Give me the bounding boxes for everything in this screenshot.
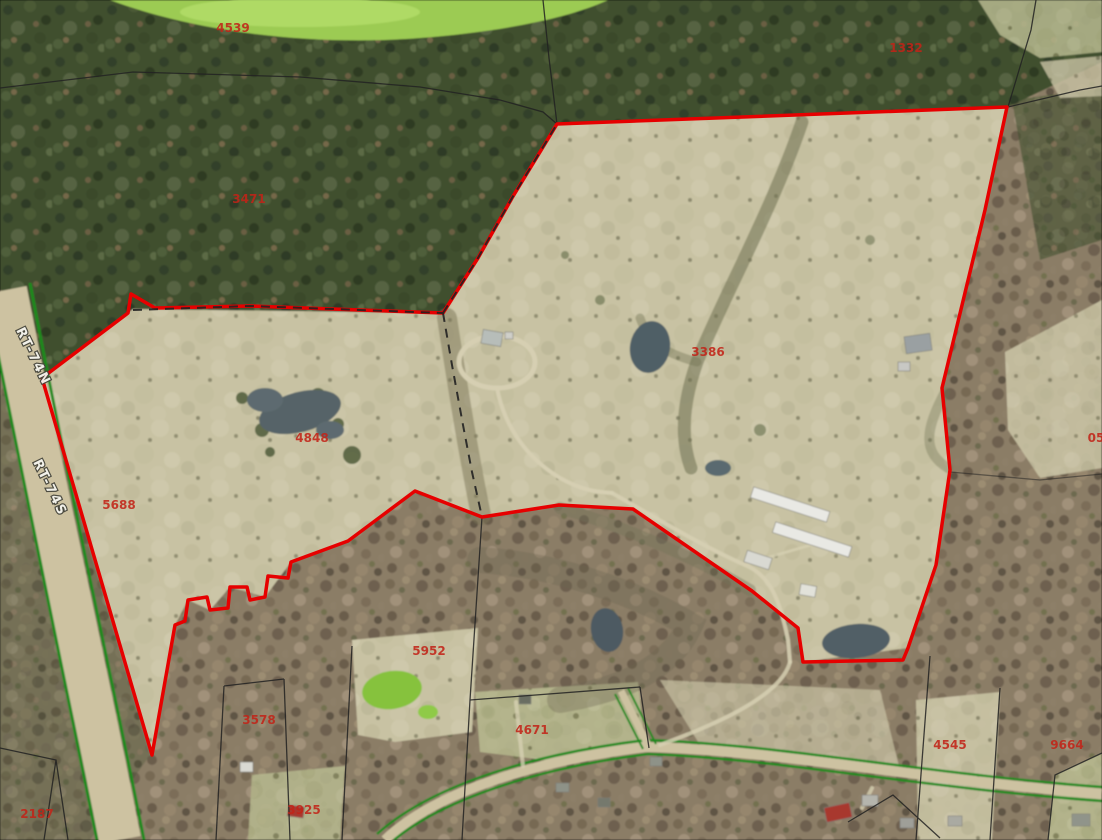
pond-small-center [705, 460, 731, 476]
map-viewport[interactable]: RT-74NRT-74S 453934711332338648485688055… [0, 0, 1102, 840]
parcel-number-label: 5688 [102, 498, 135, 512]
building-southeast [1072, 814, 1090, 826]
building-south-3 [948, 816, 962, 826]
parcel-number-label: 3471 [232, 192, 265, 206]
parcel-number-label: 4545 [933, 738, 966, 752]
parcel-number-label: 2187 [20, 807, 53, 821]
shed-northeast [898, 362, 910, 371]
pond-west-arm [247, 388, 283, 412]
shed-center [505, 332, 513, 339]
pond-green-small [418, 705, 438, 719]
parcel-number-label: 3578 [242, 713, 275, 727]
parcel-number-label: 3925 [287, 803, 320, 817]
house-bottom-2 [556, 783, 569, 792]
parcel-number-label: 4539 [216, 21, 249, 35]
building-south-1 [862, 795, 878, 806]
parcel-number-label: 1332 [889, 41, 922, 55]
terrain-layer [0, 0, 1102, 840]
aerial-map-canvas[interactable]: RT-74NRT-74S 453934711332338648485688055… [0, 0, 1102, 840]
house-southwest-1 [240, 762, 253, 772]
house-center [481, 329, 503, 346]
house-northeast [904, 333, 932, 353]
parcel-number-label: 4848 [295, 431, 328, 445]
parcel-number-label: 5952 [412, 644, 445, 658]
house-bottom-4 [650, 757, 662, 766]
house-bottom-3 [598, 798, 610, 807]
parcel-number-label: 3386 [691, 345, 724, 359]
farm-shed-4 [799, 584, 817, 598]
parcel-number-label: 4671 [515, 723, 548, 737]
building-south-2 [900, 818, 914, 828]
parcel-number-label: 05 [1088, 431, 1102, 445]
parcel-number-label: 9664 [1050, 738, 1083, 752]
